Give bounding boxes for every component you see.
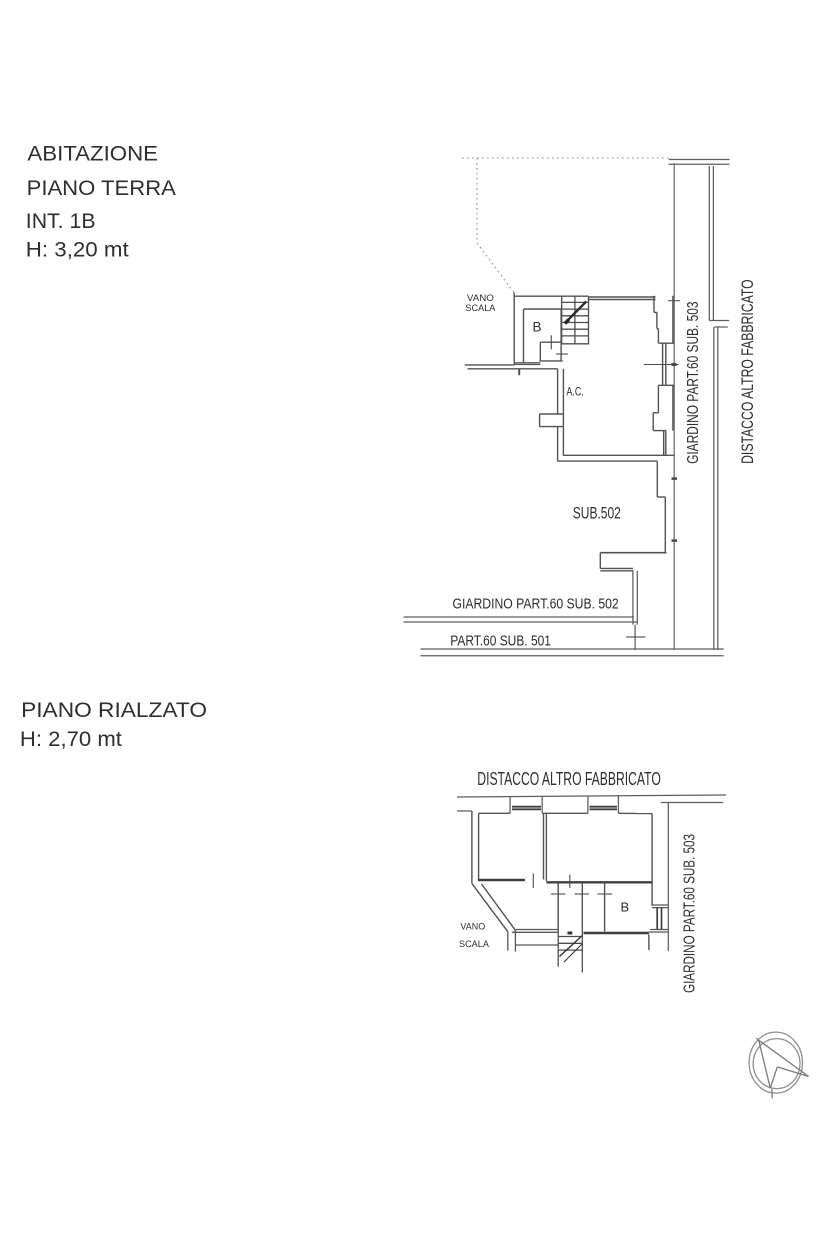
svg-text:VANO: VANO xyxy=(467,293,494,303)
svg-text:SCALA: SCALA xyxy=(465,303,495,313)
svg-text:GIARDINO PART.60 SUB. 503: GIARDINO PART.60 SUB. 503 xyxy=(682,834,699,993)
svg-text:A.C.: A.C. xyxy=(566,386,584,398)
svg-text:INT. 1B: INT. 1B xyxy=(26,209,96,233)
svg-text:B: B xyxy=(533,319,542,334)
svg-text:B: B xyxy=(621,900,630,915)
svg-text:H: 3,20 mt: H: 3,20 mt xyxy=(26,237,129,261)
svg-text:GIARDINO PART.60 SUB. 503: GIARDINO PART.60 SUB. 503 xyxy=(685,302,702,464)
svg-text:PART.60 SUB. 501: PART.60 SUB. 501 xyxy=(450,633,551,650)
svg-text:DISTACCO ALTRO FABBRICATO: DISTACCO ALTRO FABBRICATO xyxy=(477,768,661,789)
svg-text:PIANO RIALZATO: PIANO RIALZATO xyxy=(21,698,207,722)
svg-text:SCALA: SCALA xyxy=(459,939,490,950)
svg-text:PIANO TERRA: PIANO TERRA xyxy=(27,176,177,200)
svg-text:VANO: VANO xyxy=(460,921,485,932)
svg-text:ABITAZIONE: ABITAZIONE xyxy=(27,142,158,166)
svg-text:SUB.502: SUB.502 xyxy=(573,505,621,523)
svg-text:GIARDINO PART.60 SUB. 502: GIARDINO PART.60 SUB. 502 xyxy=(453,595,619,612)
svg-text:DISTACCO ALTRO FABBRICATO: DISTACCO ALTRO FABBRICATO xyxy=(738,279,757,464)
svg-text:H: 2,70 mt: H: 2,70 mt xyxy=(20,727,122,751)
